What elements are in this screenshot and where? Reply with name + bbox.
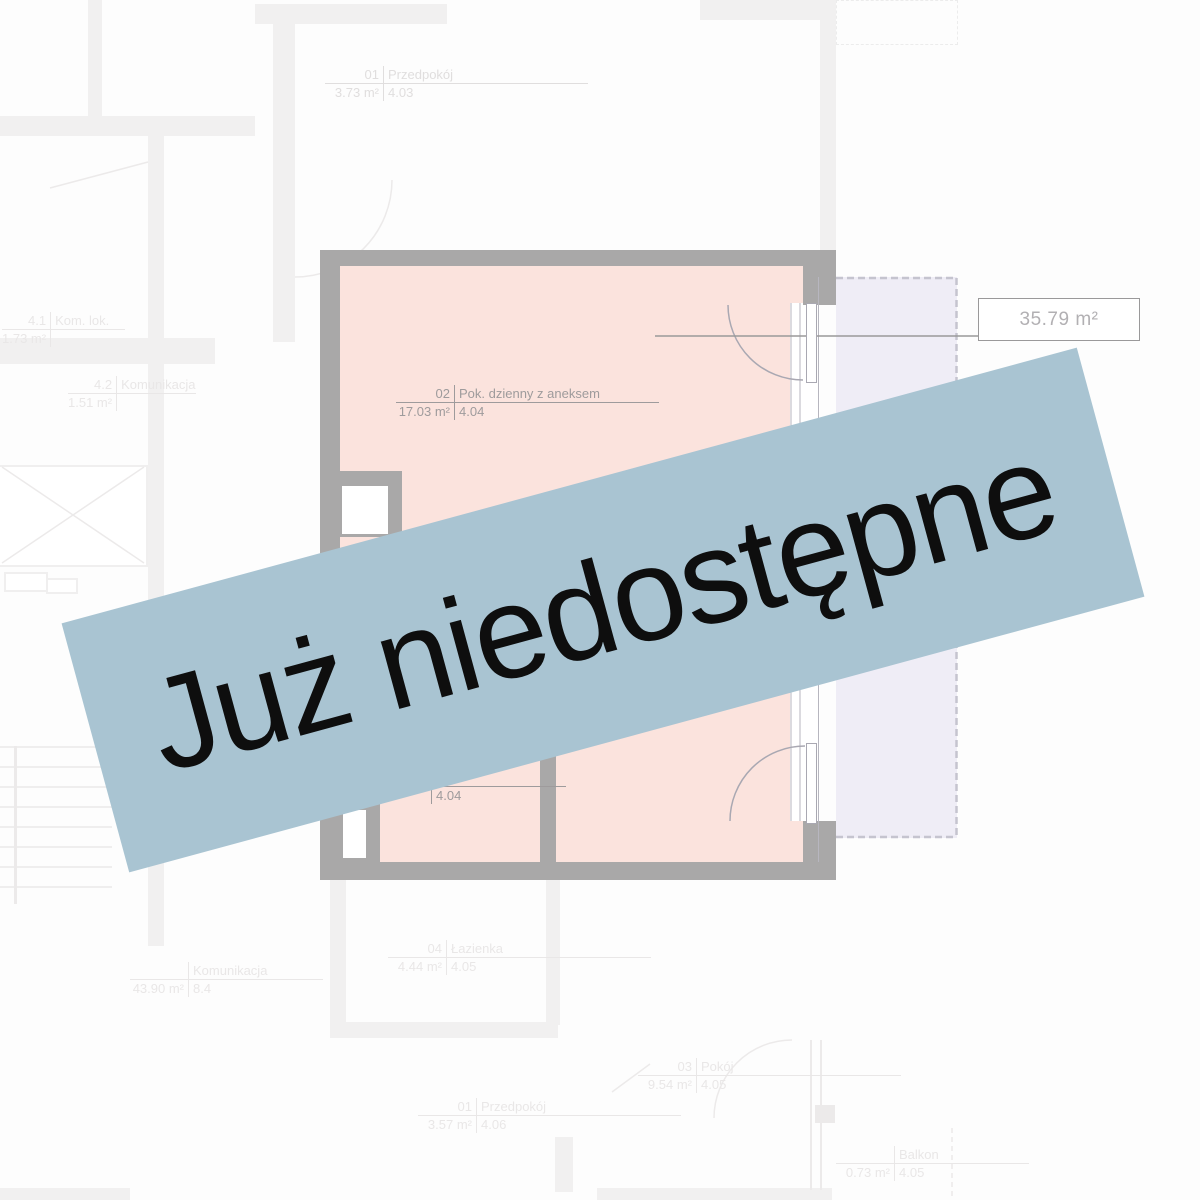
room-height: 4.05 [446,958,651,975]
room-number [130,962,188,980]
room-name: Przedpokój [383,66,588,84]
room-number [836,1146,894,1164]
bg-label-komunikacja-main: Komunikacja 43.90 m² 8.4 [130,962,323,997]
bg-label-przedpokoj-top: 01 Przedpokój 3.73 m² 4.03 [325,66,588,101]
room-height: 4.04 [454,403,659,420]
bg-label-pokoj: 03 Pokój 9.54 m² 4.05 [638,1058,901,1093]
room-number: 03 [638,1058,696,1076]
bg-label-kom-lok: 4.1 Kom. lok. 1.73 m² [2,312,125,347]
bg-label-komunikacja-small: 4.2 Komunikacja 1.51 m² [68,376,196,411]
room-area: 17.03 m² [396,403,454,420]
door-leaf-bottom [806,743,817,824]
room-height: 8.4 [188,980,323,997]
room-name: Kom. lok. [50,312,125,330]
room-name: Balkon [894,1146,1029,1164]
room-height: 4.04 [431,787,566,804]
room-area: 0.73 m² [836,1164,894,1181]
total-area-box: 35.79 m² [978,298,1140,341]
room-label-living: 02 Pok. dzienny z aneksem 17.03 m² 4.04 [396,385,659,420]
room-name: Przedpokój [476,1098,681,1116]
room-name: Komunikacja [116,376,195,394]
room-area: 1.51 m² [68,394,116,411]
room-height: 4.05 [696,1076,901,1093]
floorplan-image: 02 Pok. dzienny z aneksem 17.03 m² 4.04 … [0,0,1200,1200]
room-area: 3.57 m² [418,1116,476,1133]
room-area: 9.54 m² [638,1076,696,1093]
room-number: 04 [388,940,446,958]
room-height: 4.06 [476,1116,681,1133]
bg-label-przedpokoj-bottom: 01 Przedpokój 3.57 m² 4.06 [418,1098,681,1133]
room-area: 1.73 m² [2,330,50,347]
room-height: 4.03 [383,84,588,101]
room-number: 01 [325,66,383,84]
room-height: 4.05 [894,1164,1029,1181]
room-name: Komunikacja [188,962,323,980]
room-height [50,330,125,347]
room-number: 4.1 [2,312,50,330]
door-leaf-top [806,303,817,383]
room-area: 4.44 m² [388,958,446,975]
room-name: Pok. dzienny z aneksem [454,385,659,403]
room-number: 4.2 [68,376,116,394]
room-area: 3.73 m² [325,84,383,101]
total-area-value: 35.79 m² [1020,309,1099,331]
room-number: 01 [418,1098,476,1116]
room-name: Łazienka [446,940,651,958]
room-height [116,394,195,411]
bg-label-lazienka: 04 Łazienka 4.44 m² 4.05 [388,940,651,975]
room-number: 02 [396,385,454,403]
room-name: Pokój [696,1058,901,1076]
room-area: 43.90 m² [130,980,188,997]
bg-label-balkon: Balkon 0.73 m² 4.05 [836,1146,1029,1181]
